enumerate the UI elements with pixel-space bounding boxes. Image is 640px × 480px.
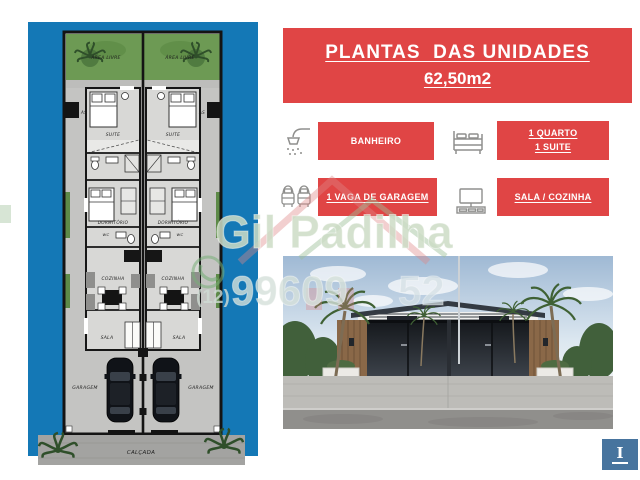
- page-title: PLANTAS DAS UNIDADES: [325, 42, 590, 64]
- label-wc-left: WC: [102, 232, 109, 237]
- label-garagem-right: GARAGEM: [188, 385, 214, 391]
- label-dormitorio-left: DORMITÓRIO: [98, 220, 129, 225]
- unit-area: 62,50m2: [424, 69, 491, 89]
- feature-sala-cozinha: SALA / COZINHA: [497, 178, 609, 216]
- bed-icon: [450, 124, 486, 158]
- feature-banheiro-label: BANHEIRO: [351, 136, 401, 146]
- header-banner: PLANTAS DAS UNIDADES 62,50m2: [283, 28, 632, 103]
- label-dormitorio-right: DORMITÓRIO: [158, 220, 189, 225]
- label-sala-left: SALA: [101, 335, 114, 341]
- label-wc-right: WC: [176, 232, 183, 237]
- photo-road: [283, 408, 613, 429]
- feature-sala-cozinha-label: SALA / COZINHA: [515, 192, 592, 202]
- garage-cars-icon: [280, 181, 314, 213]
- label-area-livre-left: ÁREA LIVRE: [90, 54, 120, 61]
- label-calcada: CALÇADA: [127, 450, 155, 456]
- label-sala-right: SALA: [173, 335, 186, 341]
- photo-driveway: [283, 376, 613, 410]
- label-cozinha-right: COZINHA: [161, 276, 184, 282]
- photo-gates: [367, 320, 533, 376]
- label-as-left: AS: [80, 110, 87, 115]
- label-garagem-left: GARAGEM: [72, 385, 98, 391]
- feature-garagem: 1 VAGA DE GARAGEM: [318, 178, 437, 216]
- feature-banheiro: BANHEIRO: [318, 122, 434, 160]
- label-area-livre-right: ÁREA LIVRE: [164, 54, 194, 61]
- corner-badge: I: [602, 439, 638, 470]
- label-suite-right: SUITE: [166, 132, 181, 138]
- feature-garagem-label: 1 VAGA DE GARAGEM: [326, 192, 428, 202]
- feature-quarto-line1: 1 QUARTO: [529, 127, 578, 140]
- floorplan-panel: ÁREA LIVRE ÁREA LIVRE AS AS SUITE SUITE …: [28, 22, 258, 470]
- house-photo: [283, 256, 613, 429]
- shower-icon: [282, 124, 314, 160]
- corner-badge-label: I: [612, 445, 627, 464]
- floorplan-drawing: ÁREA LIVRE ÁREA LIVRE AS AS SUITE SUITE …: [28, 22, 258, 470]
- feature-quarto: 1 QUARTO 1 SUITE: [497, 121, 609, 160]
- label-as-right: AS: [198, 110, 205, 115]
- flyer-page: ÁREA LIVRE ÁREA LIVRE AS AS SUITE SUITE …: [0, 0, 640, 480]
- label-cozinha-left: COZINHA: [101, 276, 124, 282]
- feature-quarto-line2: 1 SUITE: [535, 141, 571, 154]
- tv-rack-icon: [453, 184, 489, 216]
- label-suite-left: SUITE: [106, 132, 121, 138]
